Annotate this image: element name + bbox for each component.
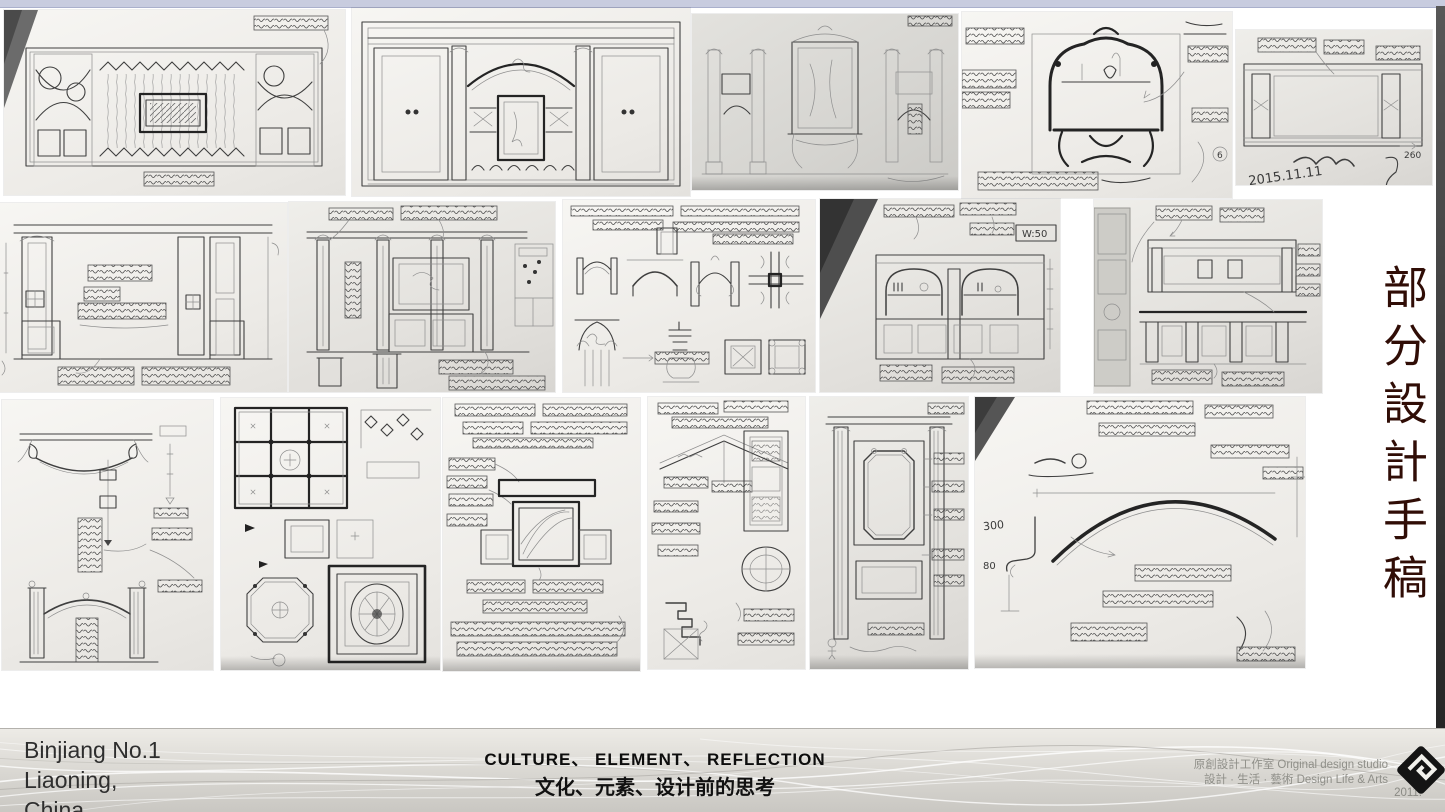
sketch-drawing [352,8,690,196]
date-annotation: 2015.11.11 [1248,164,1324,185]
sketch-photo: 6 [962,12,1232,198]
dimension-annotation: 300 [982,518,1004,533]
sketch-drawing [692,14,958,190]
tagline-chinese: 文化、元素、设计前的思考 [420,771,890,800]
sketch-photo: 260 2015.11.11 [1236,30,1432,185]
sketch-photo [289,202,555,392]
studio-credits: 原創設計工作室 Original design studio 設計 · 生活 ·… [1100,758,1388,788]
sketch-drawing [443,398,640,671]
sketch-photo [692,14,958,190]
sketch-drawing: 6 [962,12,1232,198]
sketch-photo [352,8,690,196]
sketch-photo [221,398,440,670]
dimension-annotation: 80 [983,561,996,572]
width-annotation: W:50 [1022,229,1047,240]
presentation-slide: 6 [0,0,1445,812]
sketch-photo: W:50 [820,199,1060,392]
sketch-drawing [289,202,555,392]
sketch-drawing: W:50 [820,199,1060,392]
slide-right-border [1436,6,1445,728]
sketch-drawing [221,398,440,670]
sketch-drawing [1094,200,1322,393]
sketch-photo [1094,200,1322,393]
slide-top-border [0,0,1445,8]
sketch-photo: 300 80 [975,397,1305,668]
sketch-drawing [563,200,815,392]
sketch-drawing: 300 80 [975,397,1305,668]
sketch-photo [648,397,805,669]
project-line: China [24,795,161,812]
project-line: Liaoning, [24,765,161,795]
sketch-photo [563,200,815,392]
circled-number-annotation: 6 [1217,151,1223,161]
sketch-photo [0,203,287,392]
tagline-english: CULTURE、 ELEMENT、 REFLECTION [420,745,890,770]
sketch-drawing: 260 2015.11.11 [1236,30,1432,185]
sketch-photo [2,400,213,670]
sketch-photo [810,397,968,669]
sketch-drawing [648,397,805,669]
logo-mark [1394,741,1445,803]
design-studio-logo-icon [1394,741,1445,803]
dimension-annotation: 260 [1404,151,1421,161]
project-line: Binjiang No.1 [24,735,161,765]
sketch-drawing [810,397,968,669]
studio-credit-line: 原創設計工作室 Original design studio [1100,758,1388,773]
sketch-photo [443,398,640,671]
sketch-drawing [2,400,213,670]
project-name: Binjiang No.1 Liaoning, China [24,735,161,812]
sketch-photo [4,10,345,195]
page-title: 部分設計手稿 [1377,264,1425,644]
sketch-drawing [4,10,345,195]
sketch-drawing [0,203,287,392]
studio-credit-line: 設計 · 生活 · 藝術 Design Life & Arts [1100,773,1388,788]
slide-tagline: CULTURE、 ELEMENT、 REFLECTION 文化、元素、设计前的思… [420,745,890,800]
footer-band: Binjiang No.1 Liaoning, China CULTURE、 E… [0,728,1445,812]
